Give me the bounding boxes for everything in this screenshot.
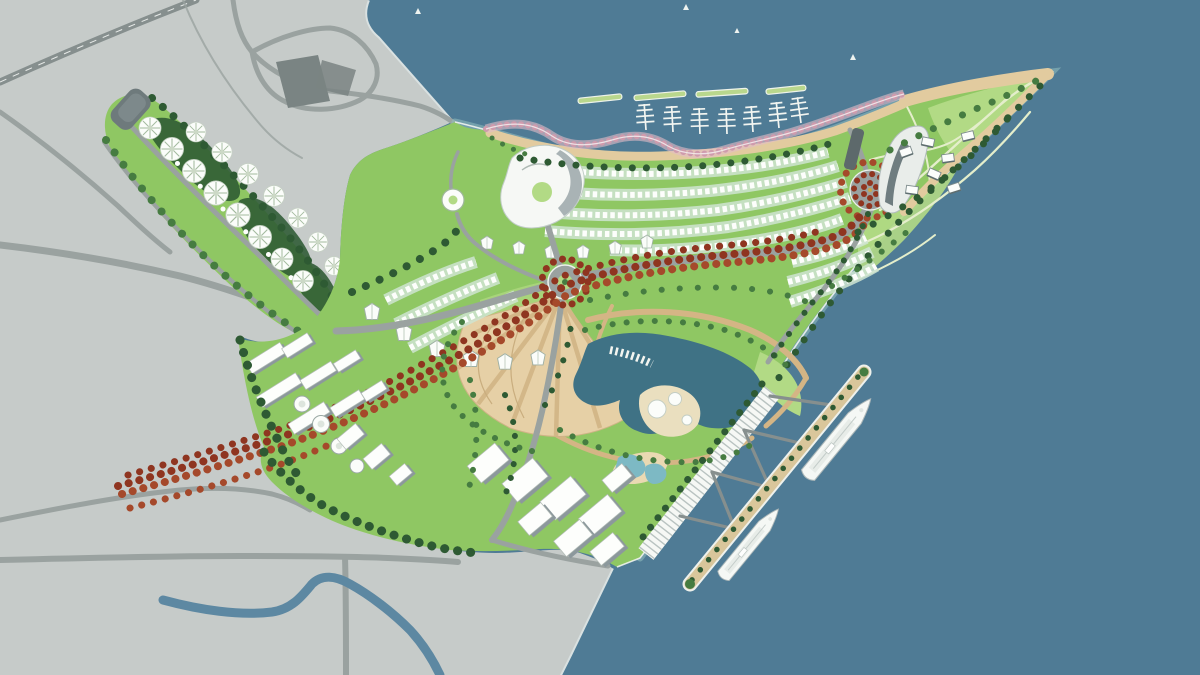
lagoon-island-lawn xyxy=(449,196,458,205)
masterplan-canvas: Coastal resort master plan — aerial site… xyxy=(0,0,1200,675)
masterplan-rendering: Coastal resort master plan — aerial site… xyxy=(0,0,1200,675)
sw-road-vertical xyxy=(345,557,346,675)
